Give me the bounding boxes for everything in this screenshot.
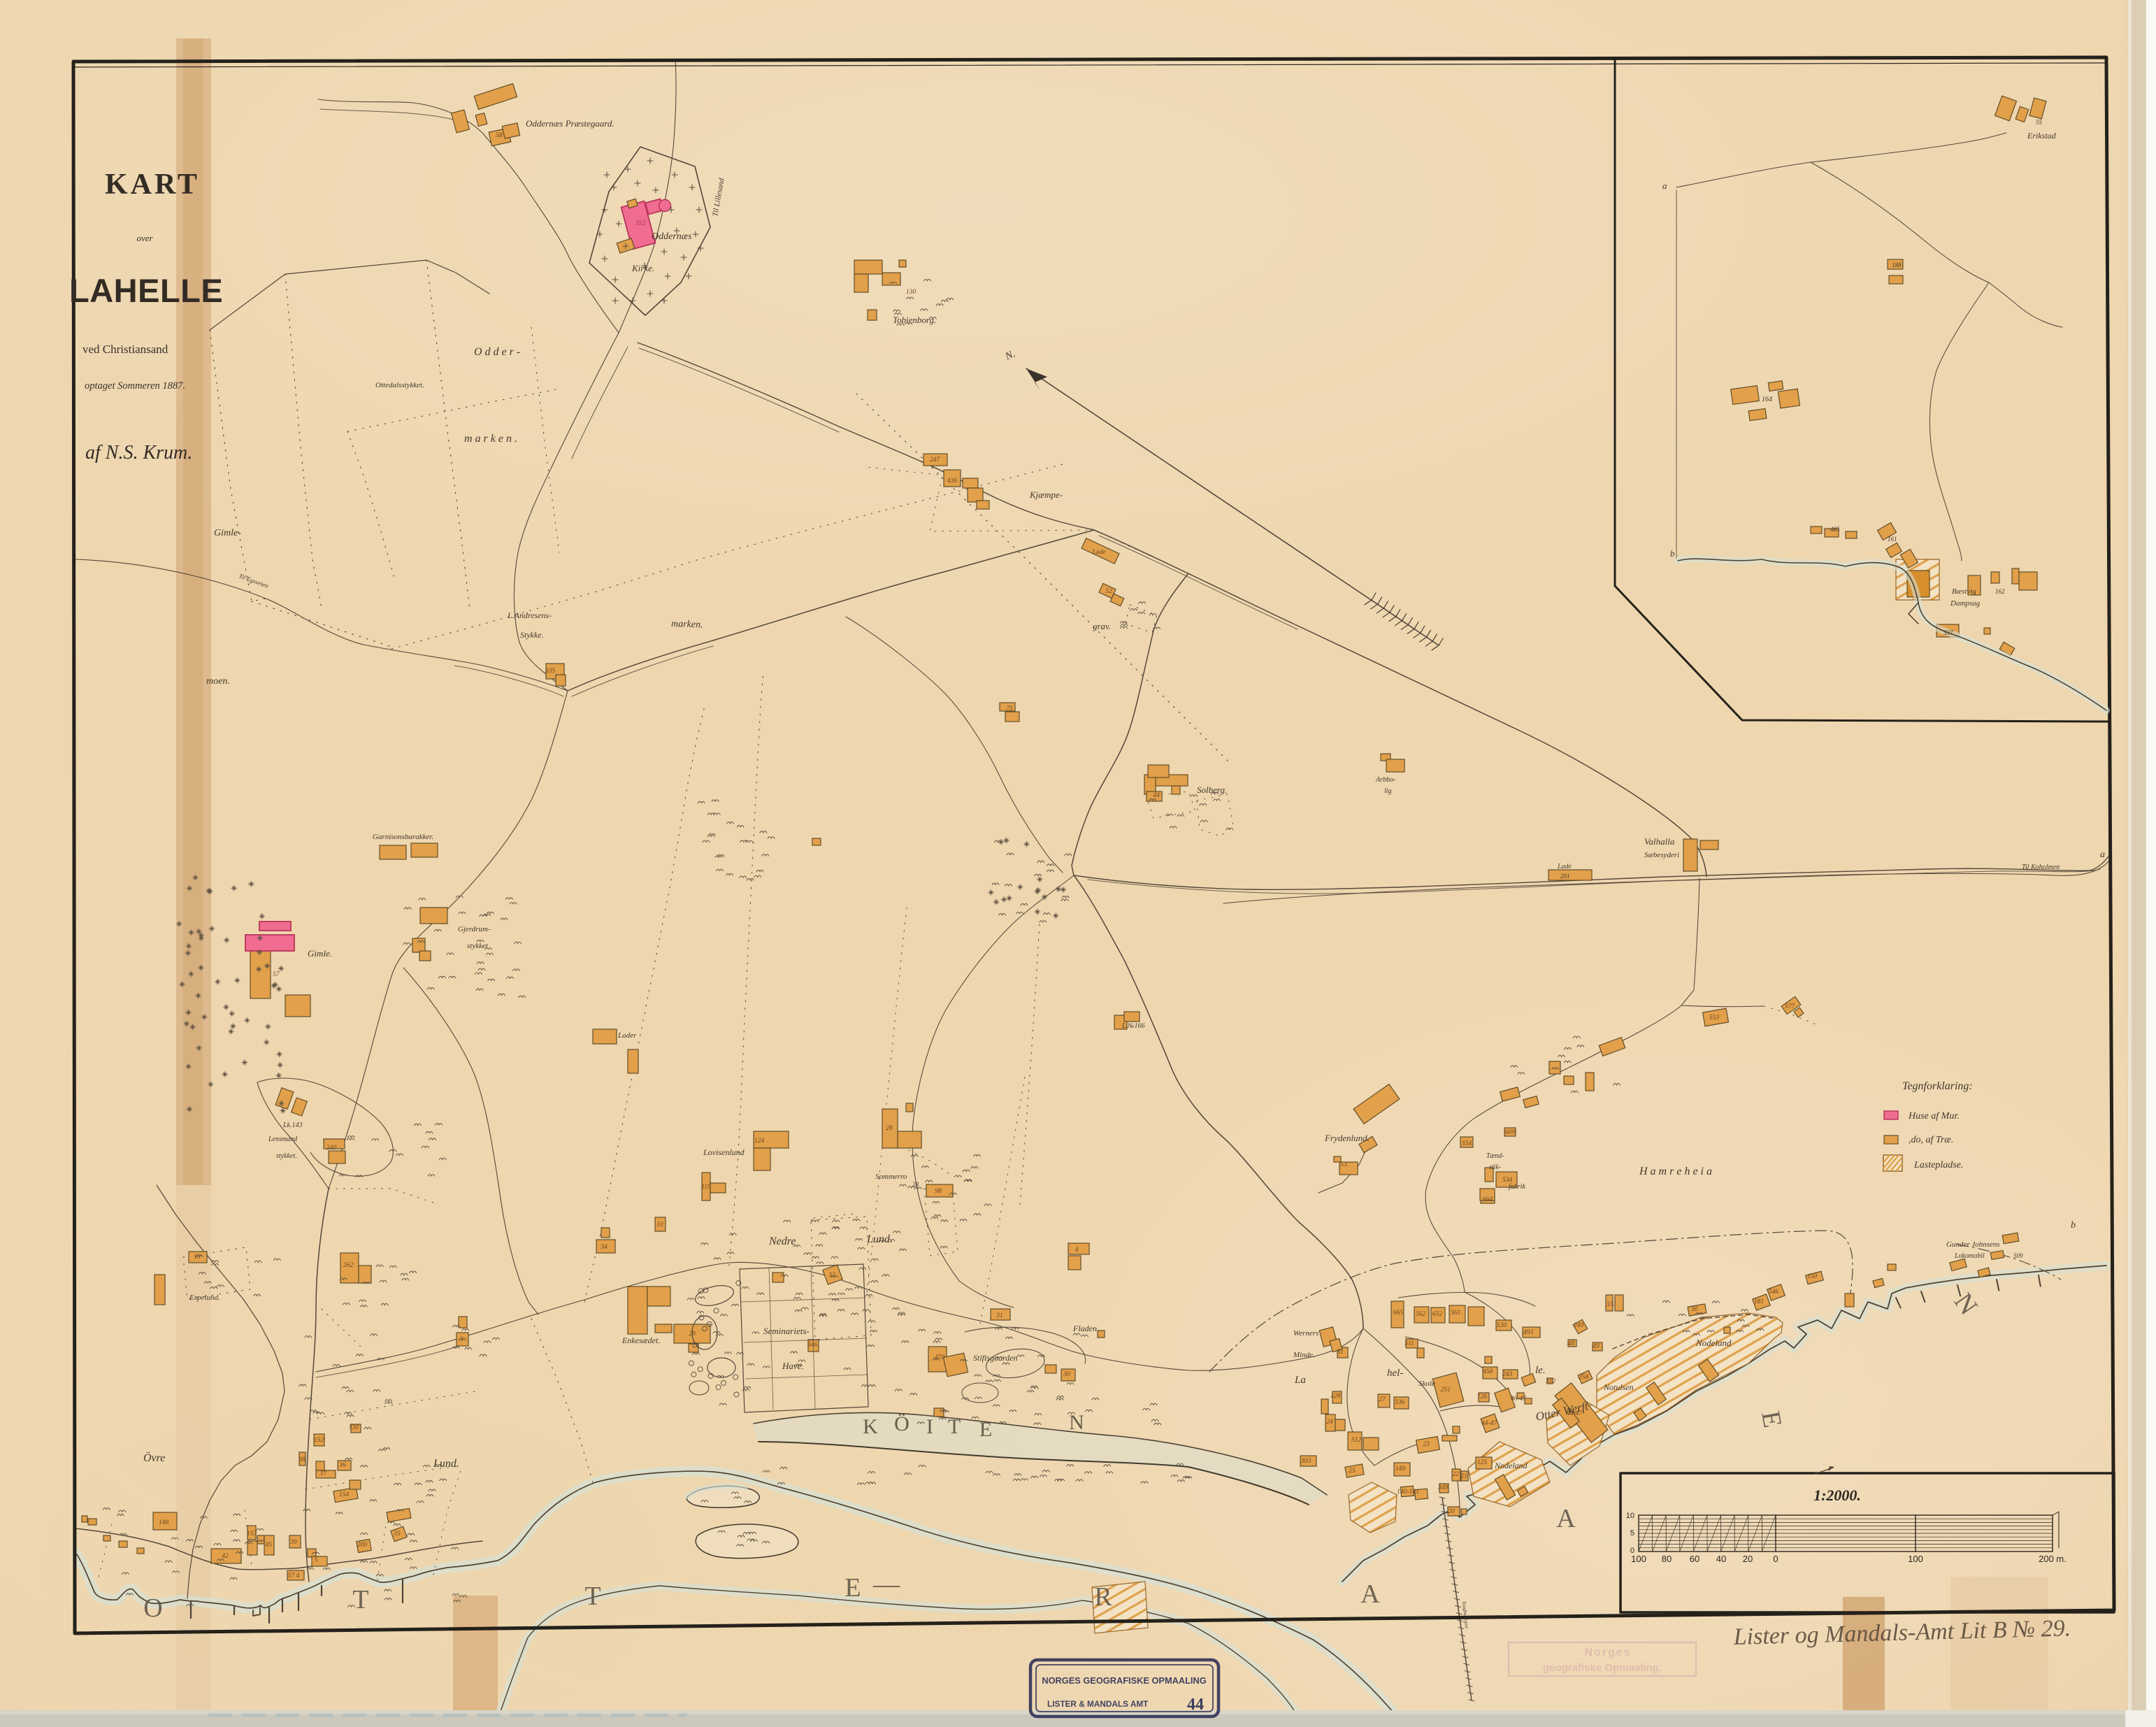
svg-text:35: 35 bbox=[393, 1531, 401, 1538]
svg-text:511: 511 bbox=[1404, 1340, 1414, 1347]
svg-text:Gunder Johnsens: Gunder Johnsens bbox=[1946, 1240, 2000, 1249]
svg-text:27: 27 bbox=[1379, 1396, 1386, 1403]
svg-text:H a m r e h e i a: H a m r e h e i a bbox=[1639, 1166, 1712, 1177]
svg-text:335: 335 bbox=[545, 668, 556, 675]
svg-text:546: 546 bbox=[1769, 1289, 1779, 1296]
svg-text:stykket: stykket bbox=[467, 942, 489, 950]
svg-text:Ö: Ö bbox=[894, 1412, 910, 1435]
svg-text:Kjæmpe-: Kjæmpe- bbox=[1029, 489, 1063, 500]
svg-text:5: 5 bbox=[315, 1557, 318, 1564]
svg-text:ved Christiansand: ved Christiansand bbox=[82, 343, 168, 356]
svg-text:485: 485 bbox=[1830, 526, 1840, 533]
svg-text:57 4: 57 4 bbox=[288, 1572, 300, 1579]
svg-text:249: 249 bbox=[1574, 1322, 1584, 1329]
svg-text:L.Andresens-: L.Andresens- bbox=[507, 610, 552, 620]
svg-text:28: 28 bbox=[886, 1125, 893, 1132]
svg-text:Lund.: Lund. bbox=[433, 1458, 459, 1470]
svg-text:5: 5 bbox=[1630, 1529, 1634, 1538]
svg-text:509: 509 bbox=[2013, 1252, 2023, 1259]
svg-text:Arbbo-: Arbbo- bbox=[1375, 776, 1395, 784]
svg-text:af N.S. Krum.: af N.S. Krum. bbox=[85, 442, 192, 464]
svg-text:Lade: Lade bbox=[1092, 549, 1106, 556]
svg-text:21: 21 bbox=[1460, 1473, 1467, 1480]
svg-text:20: 20 bbox=[1743, 1554, 1753, 1564]
svg-text:25: 25 bbox=[1349, 1468, 1356, 1475]
svg-text:stik-: stik- bbox=[1489, 1163, 1501, 1171]
svg-text:10: 10 bbox=[194, 1254, 201, 1261]
svg-text:,do, af Træ.: ,do, af Træ. bbox=[1909, 1135, 1953, 1145]
svg-text:Tobienborg.: Tobienborg. bbox=[893, 315, 936, 325]
svg-text:153: 153 bbox=[247, 1531, 257, 1538]
svg-text:39: 39 bbox=[289, 1539, 297, 1546]
svg-text:E: E bbox=[979, 1418, 992, 1441]
svg-text:E: E bbox=[845, 1573, 861, 1603]
svg-text:349: 349 bbox=[1437, 1484, 1449, 1491]
svg-text:lig: lig bbox=[1384, 787, 1392, 795]
svg-text:le.: le. bbox=[1535, 1365, 1546, 1376]
svg-text:48: 48 bbox=[1567, 1340, 1574, 1347]
svg-text:Lk.143: Lk.143 bbox=[282, 1122, 303, 1129]
svg-text:Lastepladse.: Lastepladse. bbox=[1913, 1160, 1963, 1170]
svg-text:Ottedalsstykket.: Ottedalsstykket. bbox=[375, 381, 424, 389]
svg-text:100: 100 bbox=[1631, 1554, 1646, 1564]
svg-text:32: 32 bbox=[828, 1272, 835, 1279]
svg-text:200 m.: 200 m. bbox=[2039, 1554, 2067, 1564]
svg-text:181: 181 bbox=[1754, 1298, 1764, 1305]
svg-text:154: 154 bbox=[339, 1491, 350, 1498]
svg-text:336: 336 bbox=[1394, 1399, 1405, 1406]
svg-text:Tegnforklaring:: Tegnforklaring: bbox=[1902, 1080, 1973, 1092]
svg-text:Sæbesyderi: Sæbesyderi bbox=[1644, 851, 1679, 859]
svg-text:534: 534 bbox=[1502, 1177, 1513, 1184]
svg-text:42: 42 bbox=[222, 1553, 229, 1560]
svg-text:Lensmand: Lensmand bbox=[268, 1135, 298, 1143]
svg-text:40: 40 bbox=[1716, 1554, 1726, 1564]
svg-text:60: 60 bbox=[1690, 1554, 1699, 1564]
svg-text:45: 45 bbox=[265, 1542, 272, 1549]
svg-text:346: 346 bbox=[807, 1342, 818, 1349]
svg-text:52: 52 bbox=[1105, 588, 1112, 595]
svg-text:20: 20 bbox=[1448, 1508, 1455, 1515]
svg-text:A: A bbox=[1556, 1504, 1576, 1533]
svg-text:Til Koholmen: Til Koholmen bbox=[2022, 863, 2060, 871]
svg-text:geografiske Opmaaling.: geografiske Opmaaling. bbox=[1543, 1662, 1662, 1674]
svg-text:Werners: Werners bbox=[1293, 1329, 1318, 1338]
svg-text:262: 262 bbox=[343, 1262, 354, 1269]
svg-text:33: 33 bbox=[656, 1221, 663, 1228]
svg-text:55: 55 bbox=[2036, 119, 2043, 126]
svg-text:Kirke.: Kirke. bbox=[631, 263, 654, 273]
svg-text:652: 652 bbox=[1432, 1311, 1443, 1318]
svg-text:Stykke.: Stykke. bbox=[520, 630, 544, 640]
svg-text:512: 512 bbox=[1351, 1437, 1362, 1444]
svg-text:46-47: 46-47 bbox=[1511, 1396, 1527, 1403]
svg-text:125: 125 bbox=[1477, 1459, 1488, 1466]
svg-text:34: 34 bbox=[600, 1244, 608, 1251]
svg-text:240: 240 bbox=[326, 1145, 337, 1152]
svg-text:50: 50 bbox=[1691, 1306, 1698, 1313]
svg-text:LAHELLE: LAHELLE bbox=[69, 272, 223, 309]
svg-text:Lokomobil: Lokomobil bbox=[1954, 1252, 1985, 1260]
svg-text:Nodeland: Nodeland bbox=[1494, 1461, 1528, 1470]
svg-text:31: 31 bbox=[996, 1312, 1003, 1319]
svg-text:124: 124 bbox=[754, 1138, 765, 1145]
svg-text:140-141: 140-141 bbox=[1397, 1489, 1419, 1496]
svg-text:Nodeland: Nodeland bbox=[1695, 1338, 1732, 1348]
svg-text:162: 162 bbox=[1995, 588, 2005, 595]
svg-text:530: 530 bbox=[349, 1424, 359, 1431]
svg-text:665: 665 bbox=[1393, 1310, 1404, 1317]
svg-text:243: 243 bbox=[1502, 1371, 1513, 1378]
svg-text:a: a bbox=[2100, 850, 2105, 860]
svg-text:stykket.: stykket. bbox=[276, 1152, 297, 1160]
svg-text:Stiftsgaarden: Stiftsgaarden bbox=[973, 1353, 1018, 1363]
svg-text:1:2000.: 1:2000. bbox=[1813, 1486, 1861, 1504]
svg-text:A: A bbox=[1360, 1579, 1380, 1609]
svg-text:LISTER & MANDALS AMT: LISTER & MANDALS AMT bbox=[1047, 1699, 1149, 1709]
svg-text:grav.: grav. bbox=[1093, 621, 1111, 631]
svg-text:Gimle.: Gimle. bbox=[308, 948, 332, 959]
svg-text:Gjerdrum-: Gjerdrum- bbox=[458, 925, 491, 933]
svg-text:b: b bbox=[2071, 1220, 2076, 1231]
svg-text:149: 149 bbox=[1395, 1466, 1406, 1472]
svg-text:44: 44 bbox=[1153, 792, 1160, 799]
svg-text:664: 664 bbox=[1483, 1196, 1493, 1203]
svg-text:N: N bbox=[1069, 1411, 1084, 1434]
svg-text:57: 57 bbox=[273, 971, 280, 978]
svg-text:554: 554 bbox=[1462, 1140, 1472, 1147]
svg-text:152: 152 bbox=[314, 1437, 324, 1444]
svg-text:80: 80 bbox=[1662, 1554, 1672, 1564]
svg-text:Seminariets-: Seminariets- bbox=[763, 1326, 810, 1336]
svg-text:KART: KART bbox=[105, 169, 200, 201]
svg-text:Lovisenlund: Lovisenlund bbox=[703, 1147, 745, 1157]
svg-text:130: 130 bbox=[906, 289, 917, 296]
svg-text:200: 200 bbox=[357, 1542, 368, 1549]
svg-text:T: T bbox=[352, 1585, 368, 1614]
svg-text:161: 161 bbox=[1888, 536, 1897, 543]
svg-text:22: 22 bbox=[1452, 1471, 1459, 1478]
svg-text:moen.: moen. bbox=[206, 676, 230, 687]
svg-text:Oddernæs Præstegaard.: Oddernæs Præstegaard. bbox=[526, 118, 615, 129]
svg-text:3: 3 bbox=[459, 1336, 463, 1343]
svg-text:L.№166: L.№166 bbox=[1121, 1022, 1145, 1030]
svg-text:44-47: 44-47 bbox=[1567, 1410, 1583, 1417]
svg-text:Övre: Övre bbox=[143, 1452, 165, 1464]
svg-text:b: b bbox=[1670, 548, 1675, 559]
svg-text:Nedre: Nedre bbox=[768, 1235, 796, 1247]
svg-text:4: 4 bbox=[1075, 1247, 1079, 1254]
svg-text:Valhalla: Valhalla bbox=[1644, 836, 1675, 847]
svg-text:312: 312 bbox=[1545, 1378, 1556, 1385]
svg-text:Bæstvig: Bæstvig bbox=[1952, 587, 1976, 596]
svg-text:247: 247 bbox=[930, 457, 941, 464]
svg-text:Enkesædet.: Enkesædet. bbox=[621, 1335, 660, 1345]
svg-text:577: 577 bbox=[1785, 1003, 1796, 1010]
svg-text:38: 38 bbox=[298, 1456, 306, 1463]
svg-text:Notulsen: Notulsen bbox=[1603, 1382, 1634, 1392]
svg-text:0: 0 bbox=[1773, 1554, 1778, 1564]
svg-text:Sommerro: Sommerro bbox=[875, 1173, 907, 1181]
svg-text:100: 100 bbox=[1908, 1554, 1923, 1564]
svg-text:53.: 53. bbox=[1340, 1161, 1349, 1168]
svg-text:Gimle-: Gimle- bbox=[214, 528, 241, 538]
svg-text:164: 164 bbox=[1762, 396, 1772, 403]
svg-text:561: 561 bbox=[1451, 1310, 1460, 1317]
svg-text:44-47: 44-47 bbox=[1481, 1420, 1497, 1427]
svg-text:126: 126 bbox=[1477, 1393, 1488, 1400]
svg-text:Espelund.: Espelund. bbox=[189, 1294, 220, 1302]
svg-text:Skole: Skole bbox=[1418, 1380, 1435, 1388]
svg-text:Tænd-: Tænd- bbox=[1486, 1152, 1504, 1160]
svg-text:Dampsag: Dampsag bbox=[1950, 599, 1981, 608]
svg-text:O: O bbox=[143, 1593, 162, 1623]
svg-text:Garnisonsbarakker.: Garnisonsbarakker. bbox=[373, 833, 433, 841]
svg-text:over: over bbox=[136, 233, 153, 243]
svg-text:530: 530 bbox=[1497, 1322, 1507, 1329]
svg-text:Minde.: Minde. bbox=[1293, 1351, 1315, 1359]
svg-text:28: 28 bbox=[912, 1181, 919, 1188]
svg-text:98: 98 bbox=[935, 1188, 942, 1195]
svg-text:O d d e r -: O d d e r - bbox=[474, 346, 520, 358]
svg-text:458: 458 bbox=[1483, 1368, 1493, 1375]
svg-text:553: 553 bbox=[1709, 1015, 1720, 1022]
svg-text:75: 75 bbox=[1006, 705, 1013, 712]
svg-text:Lader: Lader bbox=[617, 1031, 637, 1040]
svg-text:24: 24 bbox=[1326, 1419, 1333, 1426]
svg-text:36: 36 bbox=[338, 1462, 346, 1469]
svg-text:I: I bbox=[926, 1415, 933, 1438]
svg-text:fabrik: fabrik bbox=[1509, 1183, 1525, 1191]
svg-text:Huse af Mur.: Huse af Mur. bbox=[1908, 1111, 1960, 1122]
svg-text:609: 609 bbox=[1505, 1129, 1516, 1136]
svg-text:T: T bbox=[584, 1582, 601, 1611]
svg-text:Have.: Have. bbox=[782, 1361, 804, 1371]
svg-text:352: 352 bbox=[635, 220, 646, 227]
svg-text:Frydenlund.: Frydenlund. bbox=[1324, 1133, 1370, 1143]
svg-text:251: 251 bbox=[1441, 1386, 1451, 1393]
svg-text:201: 201 bbox=[1560, 873, 1570, 880]
svg-text:optaget Sommeren 1887.: optaget Sommeren 1887. bbox=[85, 380, 185, 392]
svg-text:44: 44 bbox=[1187, 1696, 1204, 1714]
svg-text:La: La bbox=[1294, 1375, 1306, 1386]
svg-text:K: K bbox=[863, 1415, 878, 1438]
svg-text:51: 51 bbox=[1337, 1349, 1344, 1356]
svg-text:hel-: hel- bbox=[1387, 1368, 1403, 1379]
svg-text:331: 331 bbox=[1606, 1301, 1616, 1308]
svg-text:493: 493 bbox=[1523, 1329, 1534, 1336]
svg-text:m a r k e n .: m a r k e n . bbox=[464, 433, 517, 445]
svg-text:49: 49 bbox=[1593, 1343, 1600, 1350]
svg-text:148: 148 bbox=[159, 1519, 169, 1526]
svg-text:Lade: Lade bbox=[1557, 863, 1572, 870]
svg-text:258: 258 bbox=[1579, 1374, 1589, 1381]
svg-text:T: T bbox=[948, 1415, 961, 1438]
svg-text:128: 128 bbox=[1330, 1393, 1341, 1400]
svg-text:29: 29 bbox=[689, 1331, 696, 1338]
svg-text:Lund.: Lund. bbox=[866, 1233, 893, 1245]
svg-text:150: 150 bbox=[1807, 1273, 1818, 1280]
svg-text:marken.: marken. bbox=[671, 619, 703, 631]
svg-text:Fladen.: Fladen. bbox=[1072, 1324, 1099, 1333]
svg-text:Solberg.: Solberg. bbox=[1197, 784, 1227, 795]
svg-text:30: 30 bbox=[1063, 1371, 1070, 1378]
svg-text:Oddernæs: Oddernæs bbox=[652, 231, 692, 242]
svg-text:NORGES GEOGRAFISKE OPMAALING: NORGES GEOGRAFISKE OPMAALING bbox=[1042, 1675, 1206, 1686]
svg-text:58: 58 bbox=[496, 132, 503, 139]
svg-text:470: 470 bbox=[935, 1354, 945, 1361]
svg-text:Norges: Norges bbox=[1584, 1647, 1631, 1658]
svg-text:Erikstad: Erikstad bbox=[2027, 131, 2057, 141]
svg-text:37: 37 bbox=[319, 1470, 327, 1477]
svg-text:188: 188 bbox=[1892, 261, 1902, 268]
svg-text:119: 119 bbox=[701, 1184, 711, 1191]
svg-text:303: 303 bbox=[1300, 1458, 1311, 1465]
svg-text:337: 337 bbox=[1943, 629, 1953, 636]
svg-text:—: — bbox=[872, 1570, 900, 1599]
svg-text:R: R bbox=[1094, 1582, 1112, 1612]
svg-text:562: 562 bbox=[1416, 1311, 1426, 1318]
svg-text:23: 23 bbox=[1423, 1441, 1430, 1448]
svg-text:10: 10 bbox=[1626, 1512, 1634, 1520]
svg-text:436: 436 bbox=[947, 478, 958, 485]
svg-text:a: a bbox=[1662, 180, 1667, 191]
svg-text:0: 0 bbox=[1630, 1547, 1634, 1555]
